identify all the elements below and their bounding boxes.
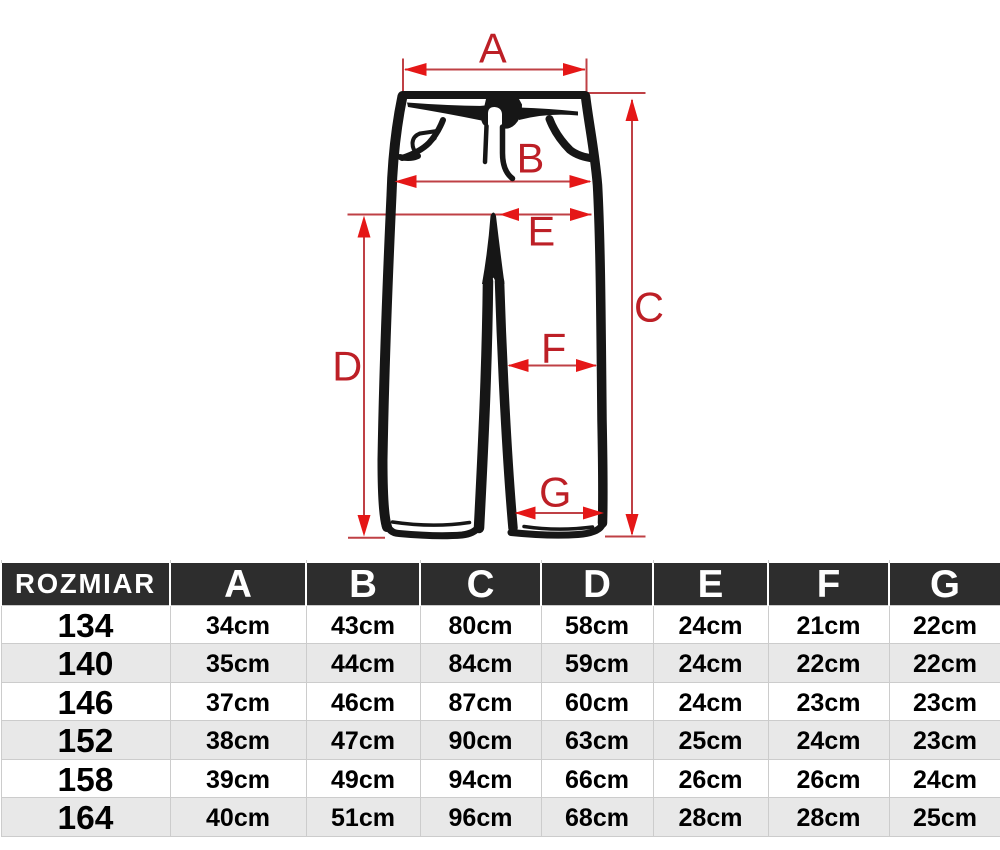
svg-text:B: B (517, 135, 545, 182)
svg-text:F: F (541, 325, 566, 372)
svg-text:A: A (479, 24, 507, 71)
svg-text:D: D (332, 343, 362, 390)
svg-text:G: G (539, 468, 571, 515)
svg-text:C: C (634, 284, 664, 331)
svg-text:E: E (527, 208, 555, 255)
